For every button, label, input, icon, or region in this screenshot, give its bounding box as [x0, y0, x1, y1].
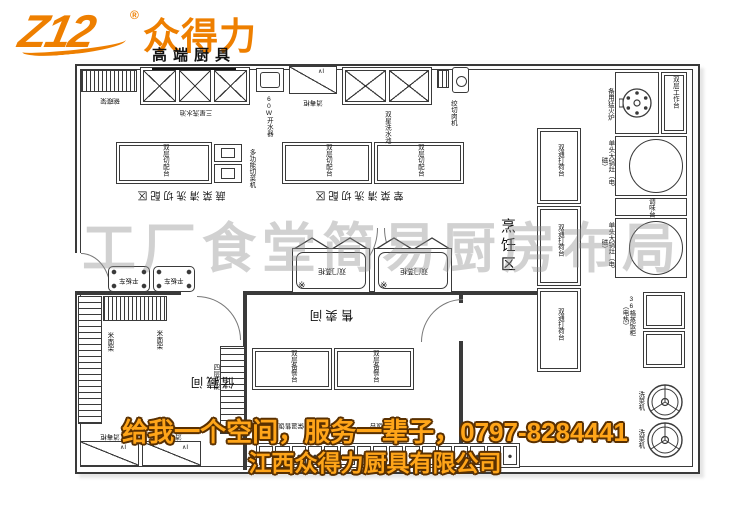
shelf-mark: ∧I	[318, 68, 324, 75]
veg-cutter-detail	[221, 168, 235, 179]
rice-rack-label: 米面架	[103, 328, 114, 356]
cut-table-meat-2: 双层切配台	[374, 142, 464, 184]
spare-burner-label: 备用猛火炉	[603, 76, 615, 132]
meat-grinder-body	[437, 70, 449, 88]
banner-company-name: 江西众得力厨具有限公司	[0, 444, 750, 478]
prep-table-label: 双层备餐台	[371, 350, 378, 388]
sink-basin	[389, 70, 430, 102]
two-compartment-sink	[342, 67, 432, 105]
cut-table-label: 双层切配台	[324, 144, 331, 182]
pass-table-1: 双通打荷台	[537, 128, 581, 204]
pass-table-3: 双通打荷台	[537, 288, 581, 372]
cut-table-label: 双层切配台	[161, 144, 168, 182]
rice-steamer-cabinet-1	[643, 292, 685, 329]
cut-table-meat-1: 双层切配台	[282, 142, 372, 184]
water-boiler	[256, 68, 284, 92]
pass-table-label: 双通打荷台	[556, 308, 563, 352]
veg-cutter-detail	[221, 148, 235, 158]
rice-rack-vertical	[78, 296, 102, 424]
veg-area-label: 蔬菜清洗切配区	[118, 187, 242, 201]
prep-table-1: 双层备餐台	[252, 348, 332, 390]
three-compartment-sink	[140, 67, 250, 105]
rice-rack-label: 米面架	[152, 326, 163, 354]
watermark-text: 工厂食堂简易厨房布局	[82, 204, 682, 283]
meat-grinder-label: 绞切肉机	[446, 97, 458, 129]
double-worktable: 双层工作台	[661, 72, 687, 134]
sink-basin	[214, 70, 247, 102]
water-boiler-label: 60W开水器	[262, 95, 274, 137]
burner-icon	[619, 85, 655, 121]
logo-registered-mark: ®	[130, 8, 139, 22]
rice-rack-horizontal	[103, 296, 167, 321]
storage-room-label: 储藏间	[175, 372, 247, 390]
dish-rack-label: 碗碟架	[92, 95, 128, 104]
sink-basin	[179, 70, 212, 102]
dish-rack	[81, 70, 137, 92]
sink-basin	[143, 70, 176, 102]
cut-table-label: 双层切配台	[416, 144, 423, 182]
rice-steamer-label: 36格蒸饭柜（电热）	[618, 290, 636, 342]
veg-washer-1-label: 洗菜机	[634, 388, 645, 414]
three-sink-label: 三星洗水池	[158, 107, 234, 116]
veg-cutter-label: 多功能切菜机	[245, 140, 256, 196]
disinfect-cabinet-top	[289, 66, 337, 94]
meat-grinder-bowl	[452, 67, 469, 93]
sink-basin	[345, 70, 386, 102]
disinfect-top-label: 消毒柜	[297, 97, 329, 106]
water-boiler-body	[260, 72, 280, 88]
kitchen-layout-poster: 碗碟架 三星洗水池 60W开水器 ∧I 消毒柜 双星洗水池 绞切肉机 备用猛火炉…	[0, 0, 750, 530]
pass-table-label: 双通打荷台	[556, 144, 563, 188]
grinder-circle	[456, 76, 467, 87]
rice-steamer-cabinet-2	[643, 331, 685, 368]
veg-cutter-top	[214, 144, 242, 162]
prep-table-label: 双层备餐台	[289, 350, 296, 388]
two-sink-label: 双星洗水池	[380, 107, 392, 147]
veg-cutter-bottom	[214, 164, 242, 183]
worktable-label: 双层工作台	[671, 76, 678, 130]
sale-room-label: 售卖间	[294, 305, 366, 323]
cut-table-veg: 双层切配台	[116, 142, 212, 184]
logo-tagline: 高端厨具	[152, 44, 236, 70]
meat-area-label: 荤菜清洗切配区	[296, 187, 420, 201]
prep-table-2: 双层备餐台	[334, 348, 414, 390]
wok-stove-1-label: 单头大锅灶（电磁）	[598, 140, 614, 186]
wok-burner-1	[629, 139, 683, 193]
